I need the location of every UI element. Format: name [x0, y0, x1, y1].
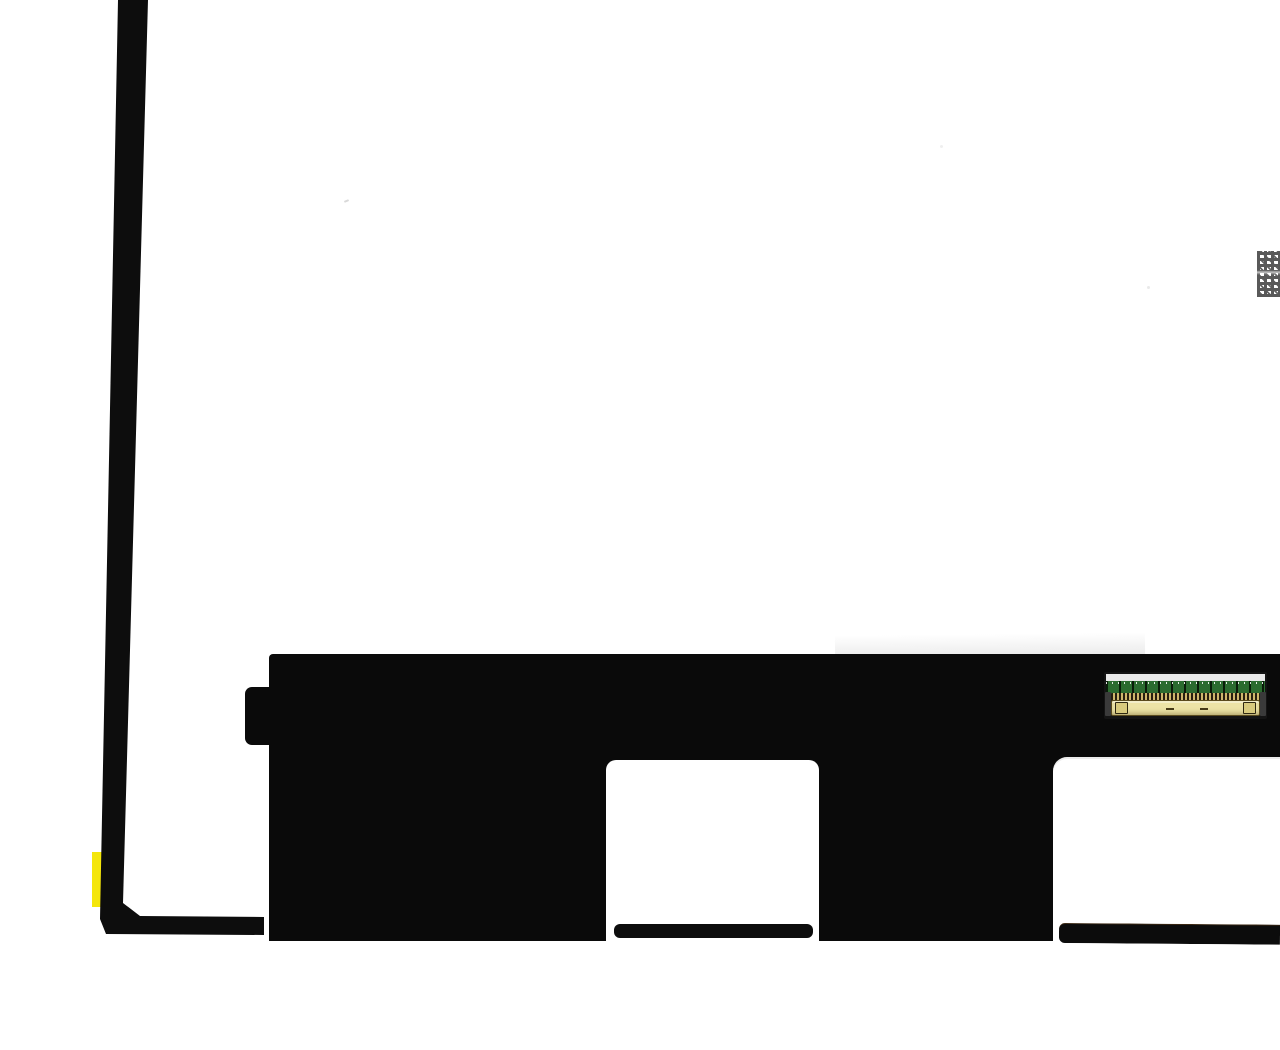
- dust-speck: [1147, 286, 1150, 289]
- connector-latch-right-icon: [1243, 702, 1256, 714]
- metal-bar-right: [1059, 923, 1280, 945]
- datamatrix-code-icon: [1257, 251, 1280, 297]
- dust-speck: [344, 199, 349, 203]
- photo-canvas: { "scene": { "type": "product-photo", "s…: [0, 0, 1280, 1050]
- metal-bar-left: [614, 924, 813, 938]
- panel-left-edge-strip: [95, 0, 270, 940]
- connector-body-dashes: [1140, 708, 1231, 710]
- connector-top-strip: [1106, 674, 1265, 681]
- edp-connector: N101 ▼1: [1104, 672, 1267, 719]
- bottom-bracket: N101 ▼1: [269, 654, 1280, 941]
- bracket-cutout-left: [606, 760, 819, 941]
- dust-speck: [940, 145, 943, 148]
- connector-endcap-right: [1260, 692, 1266, 716]
- connector-body: [1111, 700, 1260, 716]
- bracket-cutout-right: [1053, 757, 1280, 941]
- connector-endcap-left: [1105, 692, 1111, 716]
- connector-latch-left-icon: [1115, 702, 1128, 714]
